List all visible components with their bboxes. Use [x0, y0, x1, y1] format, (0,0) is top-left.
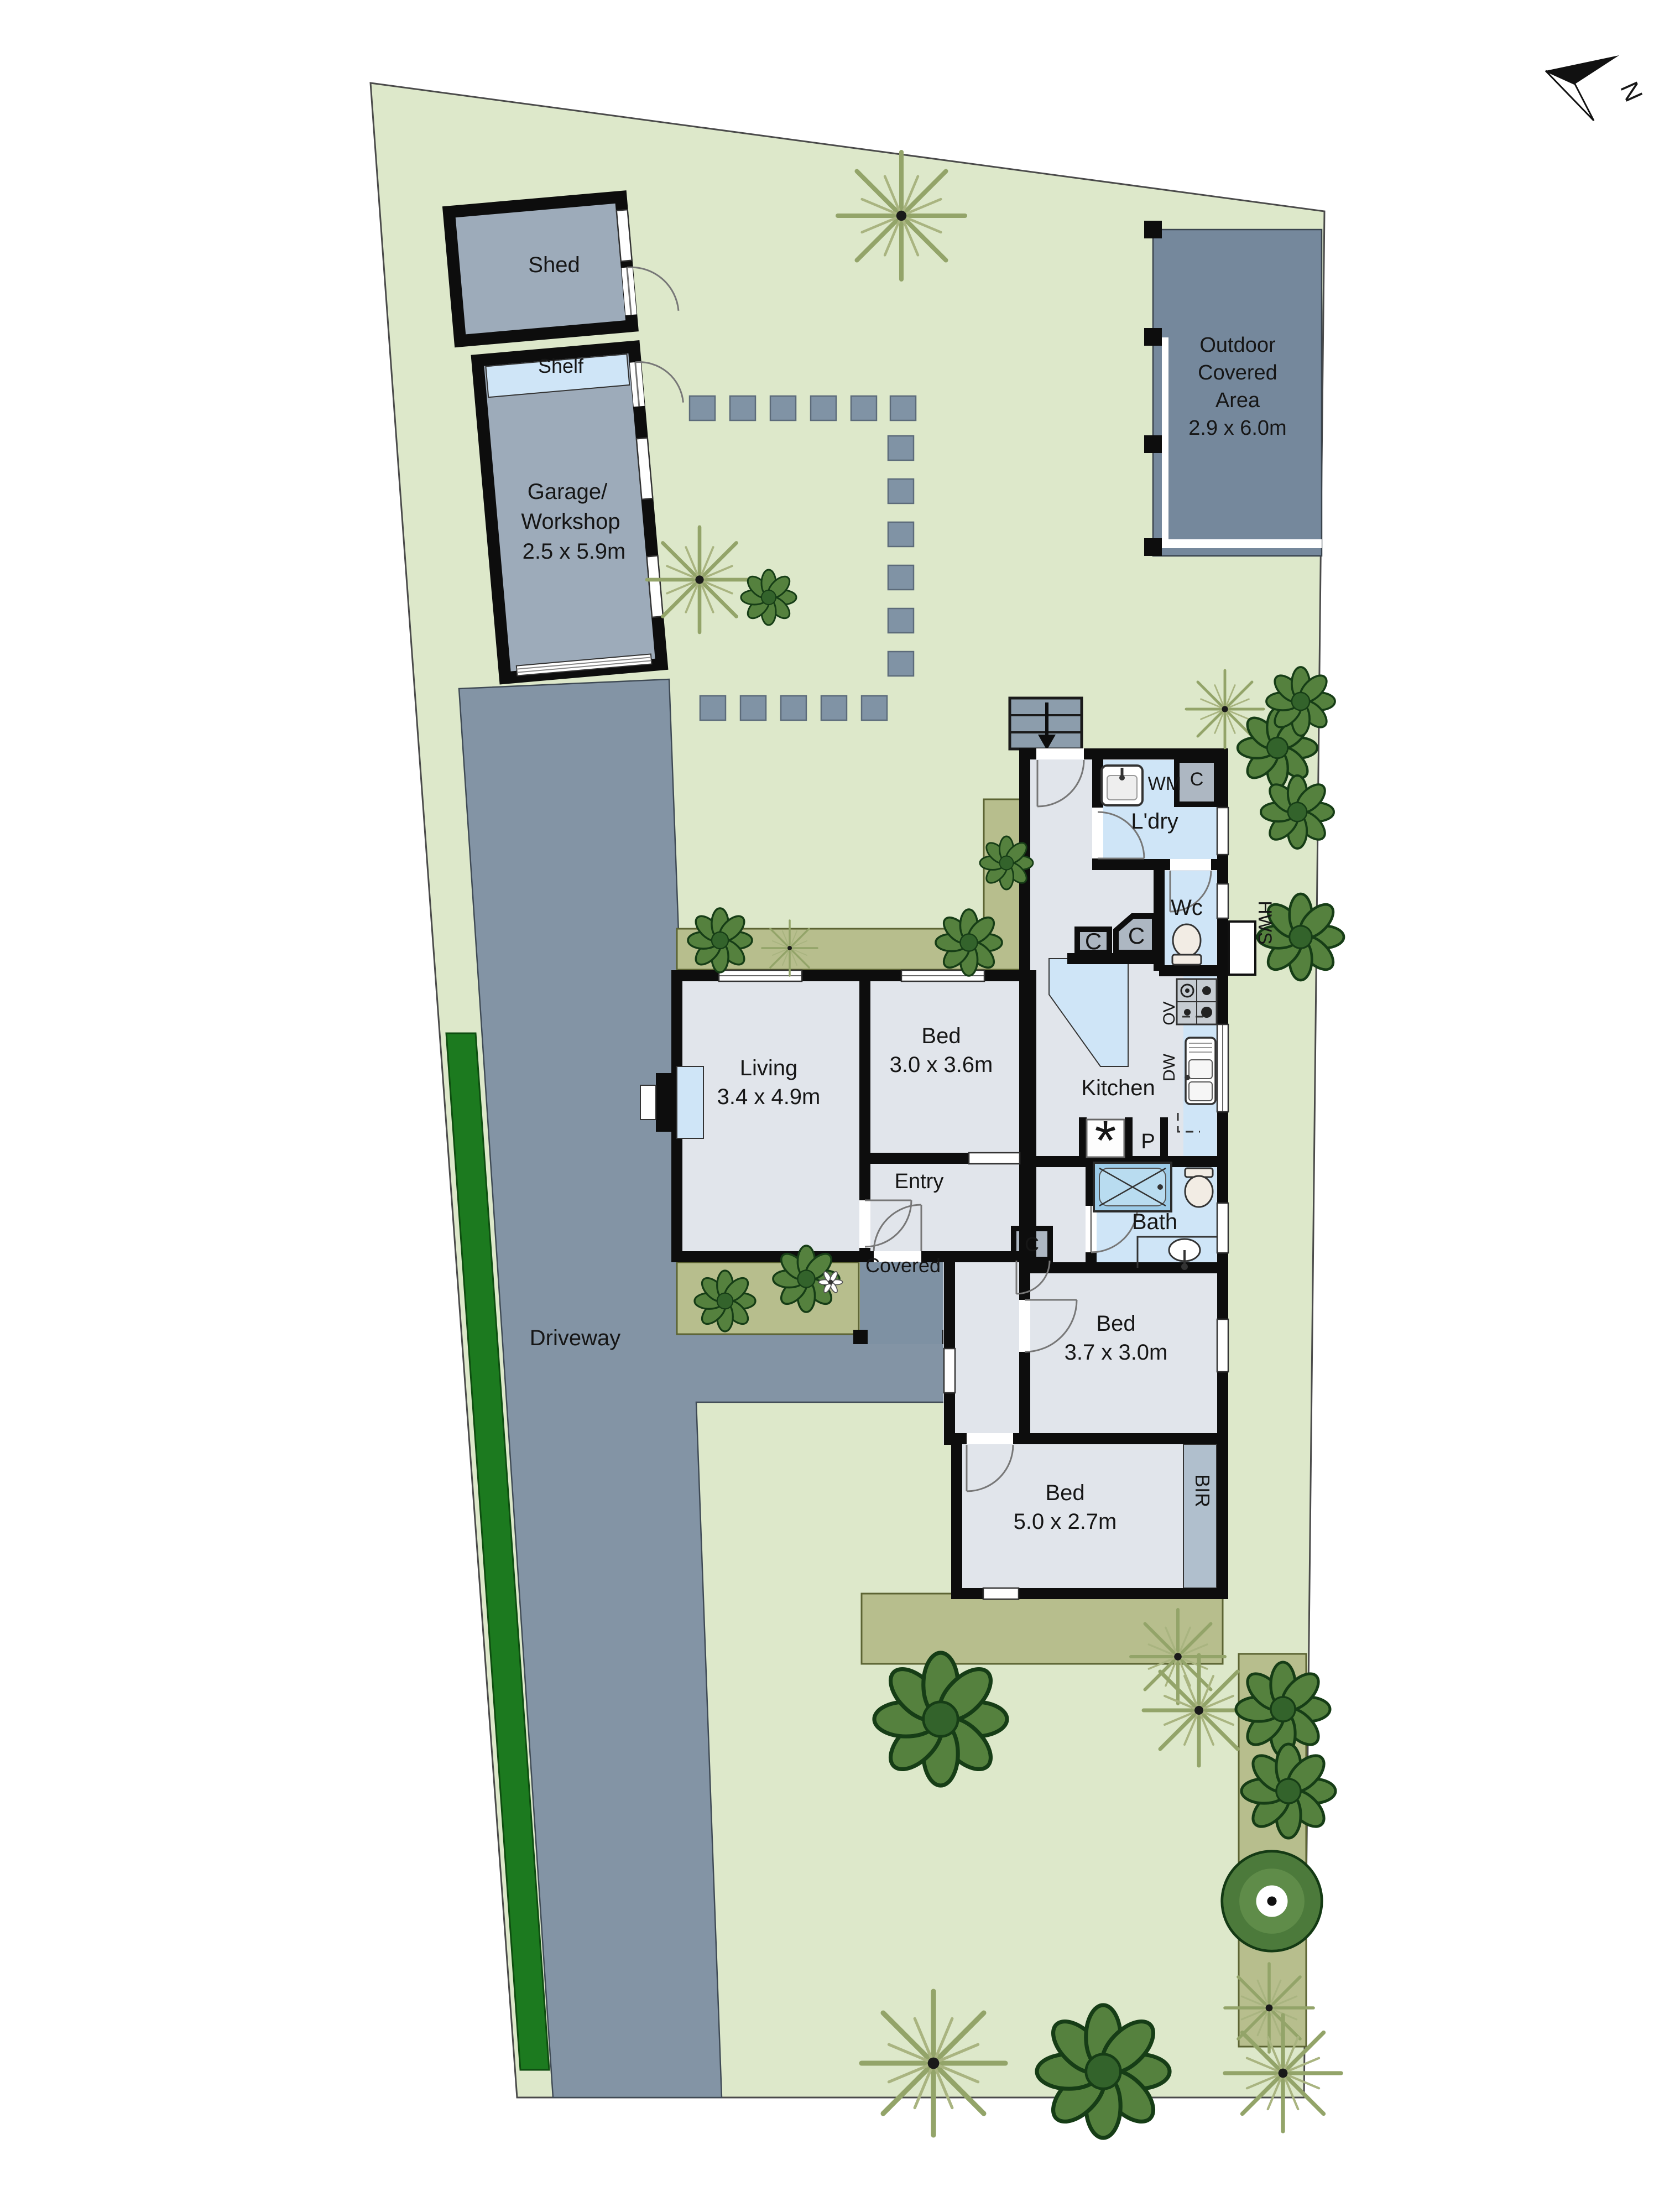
label-bed1: Bed: [921, 1024, 961, 1048]
label-closet-hall-1: C: [1085, 928, 1102, 954]
label-bed3: Bed: [1045, 1481, 1084, 1505]
label-closet-hall-2: C: [1128, 923, 1145, 949]
label-outdoor-dim: 2.9 x 6.0m: [1188, 417, 1286, 440]
label-bed2: Bed: [1096, 1311, 1135, 1336]
label-outdoor-1: Outdoor: [1199, 334, 1276, 357]
label-north: N: [1615, 77, 1648, 106]
label-living: Living: [740, 1056, 798, 1080]
label-entry: Entry: [895, 1170, 944, 1193]
north-arrow: N: [1546, 55, 1648, 121]
fireplace: [656, 1073, 677, 1132]
label-oven: OV: [1160, 1001, 1178, 1025]
label-bath: Bath: [1132, 1210, 1177, 1234]
outdoor-covered-area: [1144, 221, 1322, 556]
label-covered: Covered: [865, 1254, 941, 1277]
fireplace-hearth: [677, 1066, 703, 1138]
label-bed3-dim: 5.0 x 2.7m: [1014, 1510, 1117, 1534]
label-shed: Shed: [528, 253, 580, 277]
rear-stairs: [1010, 698, 1082, 750]
floor-plan-page: Shed Shelf Garage/ Workshop 2.5 x 5.9m O…: [0, 0, 1659, 2212]
built-in-robe: [1183, 1444, 1217, 1588]
label-outdoor-2: Covered: [1198, 361, 1277, 384]
site-plan: Shed Shelf Garage/ Workshop 2.5 x 5.9m O…: [0, 0, 1659, 2212]
label-closet-laundry: C: [1190, 769, 1204, 790]
label-driveway: Driveway: [530, 1326, 620, 1350]
hot-water-service: [1229, 922, 1255, 975]
label-hws: HWS: [1254, 901, 1275, 944]
label-shelf: Shelf: [538, 355, 584, 377]
label-wc: Wc: [1171, 896, 1203, 920]
label-garage-2: Workshop: [521, 509, 620, 534]
label-laundry: L'dry: [1131, 809, 1178, 834]
hall-corridor: [943, 1257, 1031, 1445]
label-washing-machine: WM: [1148, 773, 1181, 794]
label-bed2-dim: 3.7 x 3.0m: [1065, 1340, 1168, 1365]
room-living-bed1-entry: [677, 976, 1031, 1257]
label-pantry: P: [1141, 1130, 1155, 1153]
label-outdoor-3: Area: [1215, 389, 1260, 412]
label-bir: BIR: [1191, 1474, 1214, 1507]
label-closet-bed2: C: [1025, 1233, 1039, 1256]
label-kitchen: Kitchen: [1081, 1076, 1155, 1100]
label-dishwasher: DW: [1160, 1053, 1178, 1081]
label-bed1-dim: 3.0 x 3.6m: [890, 1053, 993, 1077]
label-fridge-symbol: *: [1095, 1110, 1117, 1172]
label-garage-dim: 2.5 x 5.9m: [523, 539, 626, 564]
label-garage-1: Garage/: [528, 480, 608, 504]
wc-toilet: [1173, 924, 1201, 956]
label-living-dim: 3.4 x 4.9m: [717, 1085, 821, 1109]
